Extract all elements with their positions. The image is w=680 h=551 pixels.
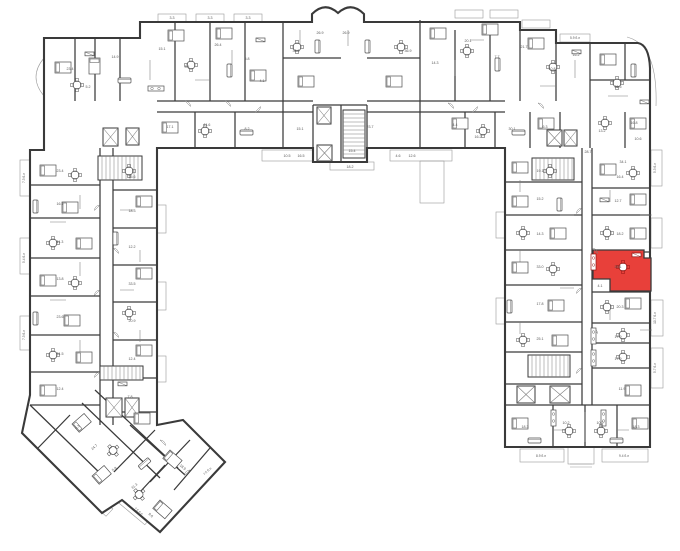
svg-text:16.2: 16.2 [573,53,580,57]
svg-text:12.4: 12.4 [129,357,136,361]
svg-text:16.2: 16.2 [475,135,482,139]
svg-text:14.9: 14.9 [112,55,119,59]
svg-text:36.9: 36.9 [405,49,412,53]
floor-plan-page: 14.923.45.215.13.426.45.84.136.926.926.9… [0,0,680,551]
svg-text:7.3 б.л: 7.3 б.л [22,173,26,183]
svg-text:11.3: 11.3 [57,240,64,244]
svg-text:15.6: 15.6 [129,175,136,179]
svg-text:15.4: 15.4 [349,149,356,153]
svg-text:10.2: 10.2 [597,421,604,425]
svg-text:4.1: 4.1 [260,79,265,83]
entrance-ramp [420,161,444,203]
svg-text:31.5: 31.5 [57,352,64,356]
svg-text:17.9: 17.9 [615,335,622,339]
svg-text:36.9: 36.9 [293,49,300,53]
svg-text:17.8: 17.8 [537,302,544,306]
floor-plan: 14.923.45.215.13.426.45.84.136.926.926.9… [0,0,680,551]
entrance-porch [568,447,594,464]
svg-text:26.4: 26.4 [215,43,222,47]
svg-text:12.7: 12.7 [615,199,622,203]
svg-text:16.5: 16.5 [298,154,305,158]
curved-balcony [36,58,44,96]
svg-text:9.4 б.л: 9.4 б.л [619,454,629,458]
svg-text:8.2: 8.2 [245,127,250,131]
svg-text:7.8: 7.8 [128,395,133,399]
svg-text:5.2: 5.2 [86,85,91,89]
svg-text:11.6: 11.6 [204,123,211,127]
svg-text:19.1: 19.1 [537,169,544,173]
svg-text:13.2: 13.2 [599,129,606,133]
svg-text:12.6: 12.6 [409,154,416,158]
svg-text:3.4: 3.4 [185,65,190,69]
svg-text:36.5: 36.5 [615,85,622,89]
stairwell [528,355,570,377]
svg-text:14.3: 14.3 [432,61,439,65]
svg-text:15.2: 15.2 [537,197,544,201]
svg-text:8.9 б.л: 8.9 б.л [536,454,546,458]
svg-text:12.2: 12.2 [129,245,136,249]
svg-text:4.1: 4.1 [598,284,603,288]
svg-text:30.1: 30.1 [509,127,516,131]
svg-text:4.6: 4.6 [396,154,401,158]
svg-text:10.5: 10.5 [284,154,291,158]
svg-text:7.7: 7.7 [495,55,500,59]
svg-text:4.4: 4.4 [453,123,458,127]
svg-text:3.3: 3.3 [246,16,251,20]
svg-text:20.1: 20.1 [465,39,472,43]
svg-text:18.3: 18.3 [129,209,136,213]
svg-text:3.3: 3.3 [208,16,213,20]
svg-text:11.9: 11.9 [619,387,626,391]
svg-text:18.2: 18.2 [617,232,624,236]
svg-text:10.6: 10.6 [635,137,642,141]
stairwell [100,366,143,380]
svg-text:26.9: 26.9 [317,31,324,35]
svg-text:12.4: 12.4 [57,387,64,391]
svg-text:18.3: 18.3 [522,425,529,429]
svg-text:13.8: 13.8 [57,277,64,281]
svg-text:5.9 б.л: 5.9 б.л [570,36,580,40]
svg-text:10.7 б.л: 10.7 б.л [653,312,657,324]
svg-text:5.8: 5.8 [245,57,250,61]
svg-text:26.1: 26.1 [615,265,622,269]
svg-text:6.3: 6.3 [543,125,548,129]
svg-text:16.1: 16.1 [57,202,64,206]
svg-text:20.9: 20.9 [129,319,136,323]
svg-text:34.1: 34.1 [620,160,627,164]
svg-text:17.9: 17.9 [615,357,622,361]
svg-text:16.8: 16.8 [631,121,638,125]
svg-text:23.4: 23.4 [57,169,64,173]
svg-text:33.0: 33.0 [537,265,544,269]
svg-text:18.2: 18.2 [347,165,354,169]
svg-text:18.3: 18.3 [633,425,640,429]
svg-text:28.7: 28.7 [585,150,592,154]
svg-text:14.3: 14.3 [537,232,544,236]
svg-text:15.1: 15.1 [159,47,166,51]
svg-text:23.6: 23.6 [57,315,64,319]
svg-text:15.1: 15.1 [297,127,304,131]
svg-text:25.1: 25.1 [537,337,544,341]
svg-text:26.9: 26.9 [343,31,350,35]
svg-text:5.4 б.л: 5.4 б.л [22,253,26,263]
svg-text:3.3: 3.3 [170,16,175,20]
svg-text:10.8: 10.8 [549,67,556,71]
svg-text:16.4: 16.4 [617,175,624,179]
svg-text:5.7 б.л: 5.7 б.л [653,363,657,373]
svg-text:33.5: 33.5 [129,282,136,286]
svg-text:7.3 б.л: 7.3 б.л [22,330,26,340]
svg-text:23.7: 23.7 [367,125,374,129]
svg-text:10.2: 10.2 [563,421,570,425]
svg-text:21.7: 21.7 [521,45,528,49]
svg-text:23.4: 23.4 [67,67,74,71]
svg-text:5.3 б.л: 5.3 б.л [653,163,657,173]
svg-text:20.3: 20.3 [617,305,624,309]
svg-text:17.1: 17.1 [167,125,174,129]
